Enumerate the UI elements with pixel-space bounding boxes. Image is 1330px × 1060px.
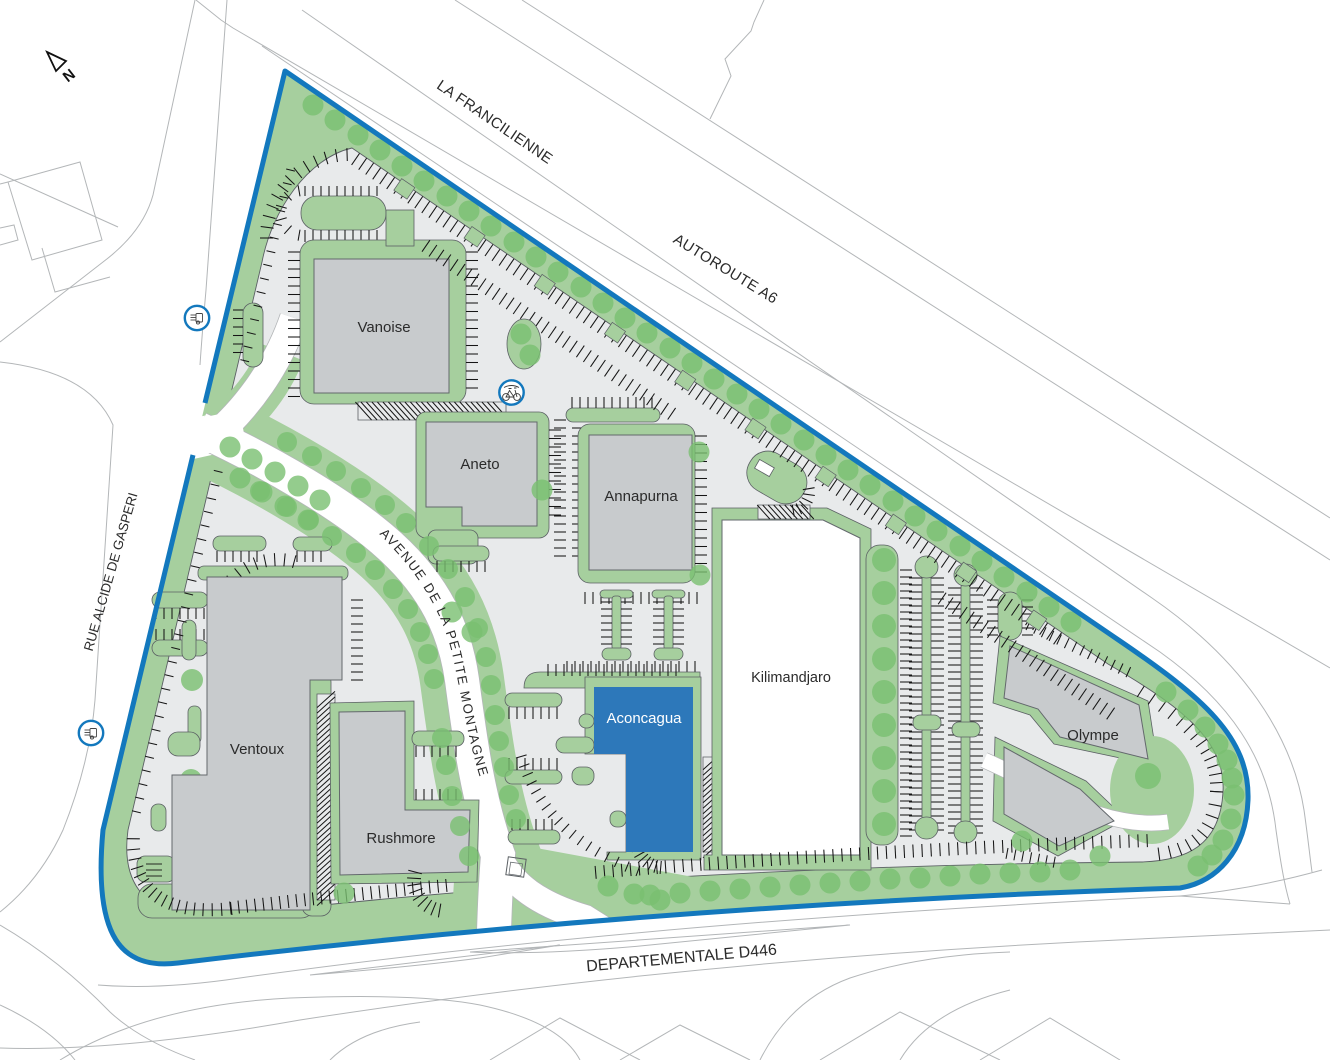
svg-text:Annapurna: Annapurna [604, 488, 678, 505]
svg-text:Aneto: Aneto [460, 456, 499, 473]
svg-text:AUTOROUTE A6: AUTOROUTE A6 [670, 231, 781, 308]
svg-text:RUE ALCIDE DE GASPERI: RUE ALCIDE DE GASPERI [81, 491, 141, 653]
svg-text:Olympe: Olympe [1067, 727, 1119, 744]
svg-text:Aconcagua: Aconcagua [606, 710, 682, 727]
svg-text:Kilimandjaro: Kilimandjaro [751, 670, 831, 686]
svg-text:N: N [60, 66, 79, 86]
svg-text:Ventoux: Ventoux [230, 741, 285, 758]
svg-text:DEPARTEMENTALE D446: DEPARTEMENTALE D446 [586, 942, 778, 976]
svg-text:Vanoise: Vanoise [357, 319, 410, 336]
svg-text:LA FRANCILIENNE: LA FRANCILIENNE [433, 77, 555, 168]
svg-text:Rushmore: Rushmore [366, 830, 435, 847]
